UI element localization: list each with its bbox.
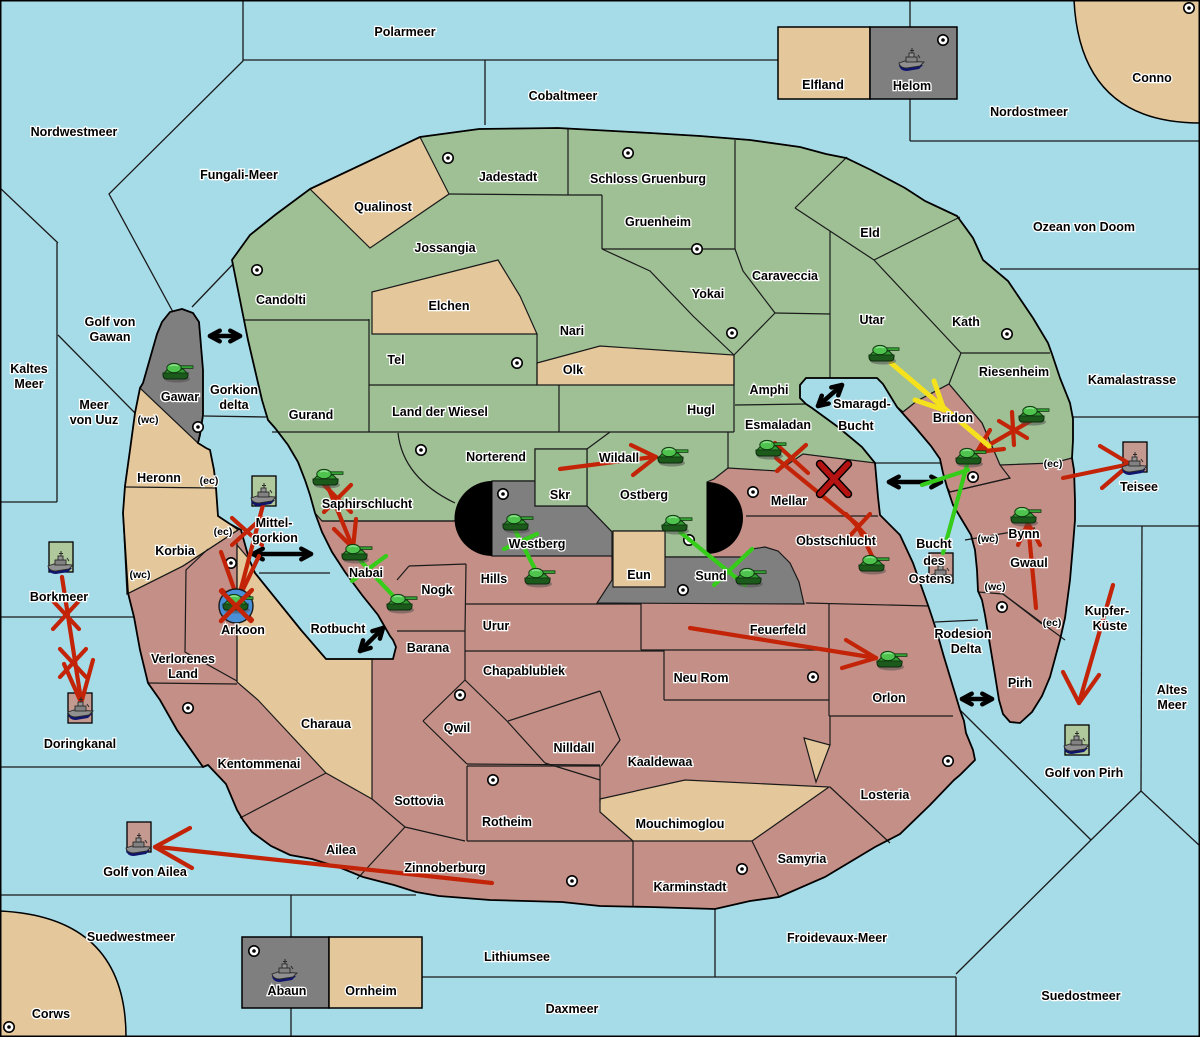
svg-text:des: des xyxy=(923,554,945,568)
svg-text:(wc): (wc) xyxy=(978,533,999,545)
svg-text:Ailea: Ailea xyxy=(326,843,357,857)
svg-text:Gruenheim: Gruenheim xyxy=(625,215,691,229)
svg-text:Verlorenes: Verlorenes xyxy=(151,652,215,666)
svg-text:Meer: Meer xyxy=(79,398,108,412)
svg-text:Losteria: Losteria xyxy=(861,788,911,802)
svg-text:Utar: Utar xyxy=(859,313,884,327)
svg-text:Schloss Gruenburg: Schloss Gruenburg xyxy=(590,172,706,186)
svg-text:Bucht: Bucht xyxy=(916,537,952,551)
svg-text:Meer: Meer xyxy=(1157,698,1186,712)
svg-text:Nogk: Nogk xyxy=(421,583,452,597)
svg-text:Obstschlucht: Obstschlucht xyxy=(796,534,877,548)
svg-text:Golf von: Golf von xyxy=(85,315,136,329)
svg-text:Nordostmeer: Nordostmeer xyxy=(990,105,1068,119)
svg-text:Golf von Pirh: Golf von Pirh xyxy=(1045,766,1123,780)
svg-text:Gorkion: Gorkion xyxy=(210,383,258,397)
svg-text:Bynn: Bynn xyxy=(1008,527,1039,541)
svg-text:Westberg: Westberg xyxy=(509,537,566,551)
svg-text:(wc): (wc) xyxy=(138,414,159,426)
svg-text:Kaaldewaa: Kaaldewaa xyxy=(628,755,694,769)
svg-text:Pirh: Pirh xyxy=(1008,676,1032,690)
svg-text:Daxmeer: Daxmeer xyxy=(546,1002,599,1016)
svg-text:(wc): (wc) xyxy=(130,569,151,581)
svg-text:Barana: Barana xyxy=(407,641,450,655)
svg-text:Hills: Hills xyxy=(481,572,507,586)
svg-text:Rotbucht: Rotbucht xyxy=(311,622,367,636)
svg-text:Nabai: Nabai xyxy=(349,566,383,580)
svg-text:Gawar: Gawar xyxy=(161,390,199,404)
svg-text:(ec): (ec) xyxy=(200,475,219,487)
svg-text:Candolti: Candolti xyxy=(256,293,306,307)
svg-text:delta: delta xyxy=(219,398,249,412)
svg-text:Skr: Skr xyxy=(550,488,570,502)
svg-text:Caraveccia: Caraveccia xyxy=(752,269,819,283)
svg-text:Kentommenai: Kentommenai xyxy=(218,757,301,771)
svg-text:Smaragd-: Smaragd- xyxy=(833,397,891,411)
svg-text:Rodesion: Rodesion xyxy=(935,627,992,641)
svg-text:Meer: Meer xyxy=(14,377,43,391)
svg-text:Golf von Ailea: Golf von Ailea xyxy=(103,865,188,879)
svg-text:Mittel-: Mittel- xyxy=(256,516,293,530)
svg-text:gorkion: gorkion xyxy=(252,531,298,545)
svg-text:Korbia: Korbia xyxy=(155,544,196,558)
svg-text:Elchen: Elchen xyxy=(429,299,470,313)
svg-text:Orlon: Orlon xyxy=(872,691,905,705)
svg-text:Borkmeer: Borkmeer xyxy=(30,590,88,604)
svg-text:Chapablublek: Chapablublek xyxy=(483,664,565,678)
svg-text:Yokai: Yokai xyxy=(692,287,724,301)
svg-text:Corws: Corws xyxy=(32,1007,70,1021)
svg-text:(ec): (ec) xyxy=(1043,617,1062,629)
svg-text:Nilldall: Nilldall xyxy=(554,741,595,755)
svg-text:Gwaul: Gwaul xyxy=(1010,556,1048,570)
svg-text:Hugl: Hugl xyxy=(687,403,715,417)
svg-text:Elfland: Elfland xyxy=(802,78,844,92)
svg-text:Saphirschlucht: Saphirschlucht xyxy=(322,497,413,511)
svg-text:Teisee: Teisee xyxy=(1120,480,1158,494)
svg-text:Qualinost: Qualinost xyxy=(354,200,412,214)
svg-text:Land der Wiesel: Land der Wiesel xyxy=(392,405,488,419)
svg-text:Ostberg: Ostberg xyxy=(620,488,668,502)
svg-text:Jossangia: Jossangia xyxy=(414,241,476,255)
svg-text:(wc): (wc) xyxy=(985,581,1006,593)
svg-text:Ostens: Ostens xyxy=(909,572,951,586)
svg-text:Nari: Nari xyxy=(560,324,584,338)
svg-text:Feuerfeld: Feuerfeld xyxy=(750,623,806,637)
svg-text:Heronn: Heronn xyxy=(137,471,181,485)
svg-text:Gurand: Gurand xyxy=(289,408,333,422)
svg-text:Arkoon: Arkoon xyxy=(221,623,265,637)
svg-text:Bridon: Bridon xyxy=(933,411,973,425)
svg-text:Sottovia: Sottovia xyxy=(394,794,444,808)
svg-text:Neu Rom: Neu Rom xyxy=(674,671,729,685)
svg-text:Küste: Küste xyxy=(1093,619,1128,633)
svg-text:Amphi: Amphi xyxy=(750,383,789,397)
svg-text:Land: Land xyxy=(168,667,198,681)
svg-text:Ozean von Doom: Ozean von Doom xyxy=(1033,220,1135,234)
svg-text:von Uuz: von Uuz xyxy=(70,413,119,427)
svg-text:Karminstadt: Karminstadt xyxy=(654,880,728,894)
svg-text:(ec): (ec) xyxy=(1044,458,1063,470)
svg-text:Conno: Conno xyxy=(1132,71,1172,85)
svg-text:Doringkanal: Doringkanal xyxy=(44,737,116,751)
svg-text:Polarmeer: Polarmeer xyxy=(374,25,435,39)
svg-text:Kath: Kath xyxy=(952,315,980,329)
svg-text:Mellar: Mellar xyxy=(771,494,807,508)
svg-text:Tel: Tel xyxy=(387,353,404,367)
svg-text:Cobaltmeer: Cobaltmeer xyxy=(529,89,598,103)
svg-text:Suedostmeer: Suedostmeer xyxy=(1041,989,1120,1003)
svg-text:Urur: Urur xyxy=(483,619,510,633)
svg-text:Altes: Altes xyxy=(1157,683,1188,697)
svg-text:Kupfer-: Kupfer- xyxy=(1085,604,1129,618)
svg-text:Kamalastrasse: Kamalastrasse xyxy=(1088,373,1176,387)
svg-text:Wildall: Wildall xyxy=(599,451,639,465)
svg-text:Eun: Eun xyxy=(627,568,651,582)
svg-text:Suedwestmeer: Suedwestmeer xyxy=(87,930,175,944)
svg-text:Eld: Eld xyxy=(860,226,879,240)
svg-text:Olk: Olk xyxy=(563,363,583,377)
svg-text:Helom: Helom xyxy=(893,79,931,93)
svg-text:Qwil: Qwil xyxy=(444,721,470,735)
svg-text:Kaltes: Kaltes xyxy=(10,362,48,376)
svg-text:Rotheim: Rotheim xyxy=(482,815,532,829)
svg-text:Lithiumsee: Lithiumsee xyxy=(484,950,550,964)
svg-text:Jadestadt: Jadestadt xyxy=(479,170,538,184)
svg-text:Gawan: Gawan xyxy=(90,330,131,344)
svg-text:(ec): (ec) xyxy=(214,526,233,538)
svg-text:Fungali-Meer: Fungali-Meer xyxy=(200,168,278,182)
svg-text:Ornheim: Ornheim xyxy=(345,984,396,998)
svg-text:Froidevaux-Meer: Froidevaux-Meer xyxy=(787,931,887,945)
svg-text:Nordwestmeer: Nordwestmeer xyxy=(31,125,118,139)
svg-text:Bucht: Bucht xyxy=(838,419,874,433)
svg-text:Charaua: Charaua xyxy=(301,717,352,731)
svg-text:Sund: Sund xyxy=(695,569,726,583)
svg-text:Riesenheim: Riesenheim xyxy=(979,365,1049,379)
svg-text:Norterend: Norterend xyxy=(466,450,526,464)
svg-text:Esmaladan: Esmaladan xyxy=(745,418,811,432)
svg-text:Mouchimoglou: Mouchimoglou xyxy=(636,817,725,831)
svg-text:Zinnoberburg: Zinnoberburg xyxy=(404,861,485,875)
svg-text:Samyria: Samyria xyxy=(778,852,828,866)
svg-text:Delta: Delta xyxy=(951,642,983,656)
svg-text:Abaun: Abaun xyxy=(268,984,307,998)
